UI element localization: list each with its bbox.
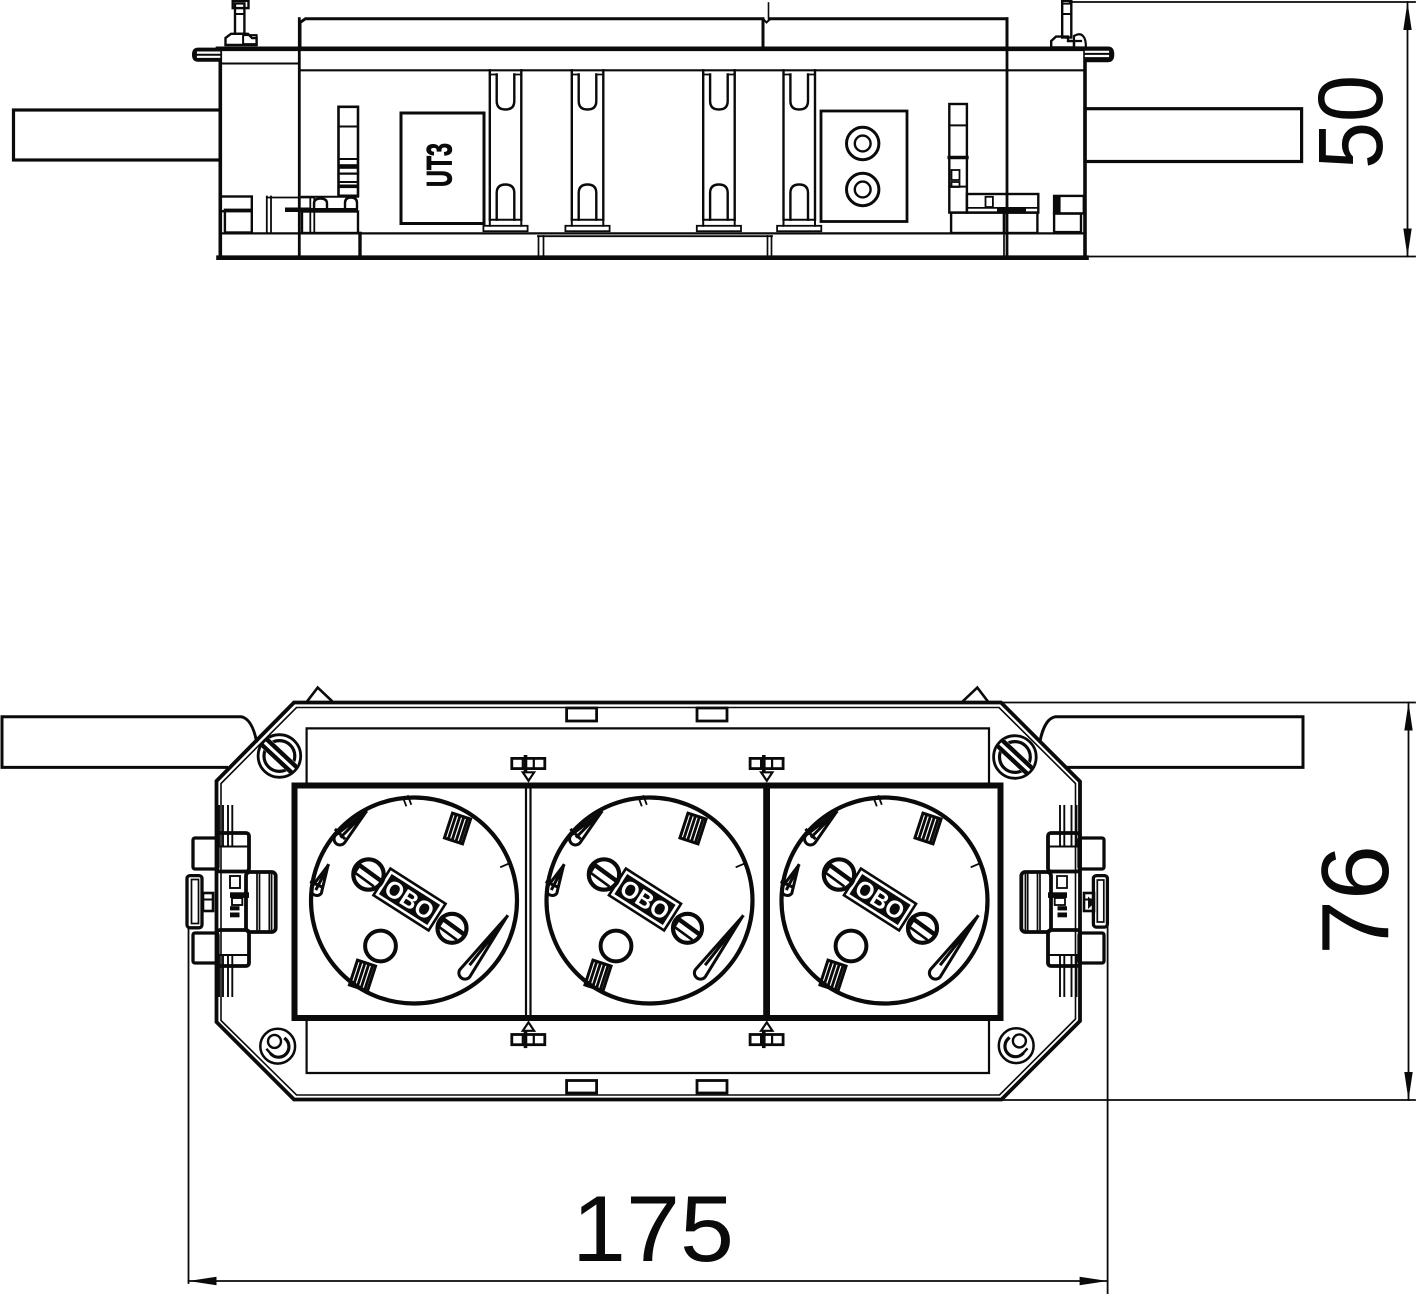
svg-text:76: 76 — [1302, 845, 1409, 955]
svg-text:50: 50 — [1300, 75, 1402, 169]
svg-text:UT3: UT3 — [421, 143, 460, 187]
svg-text:175: 175 — [572, 1176, 734, 1281]
